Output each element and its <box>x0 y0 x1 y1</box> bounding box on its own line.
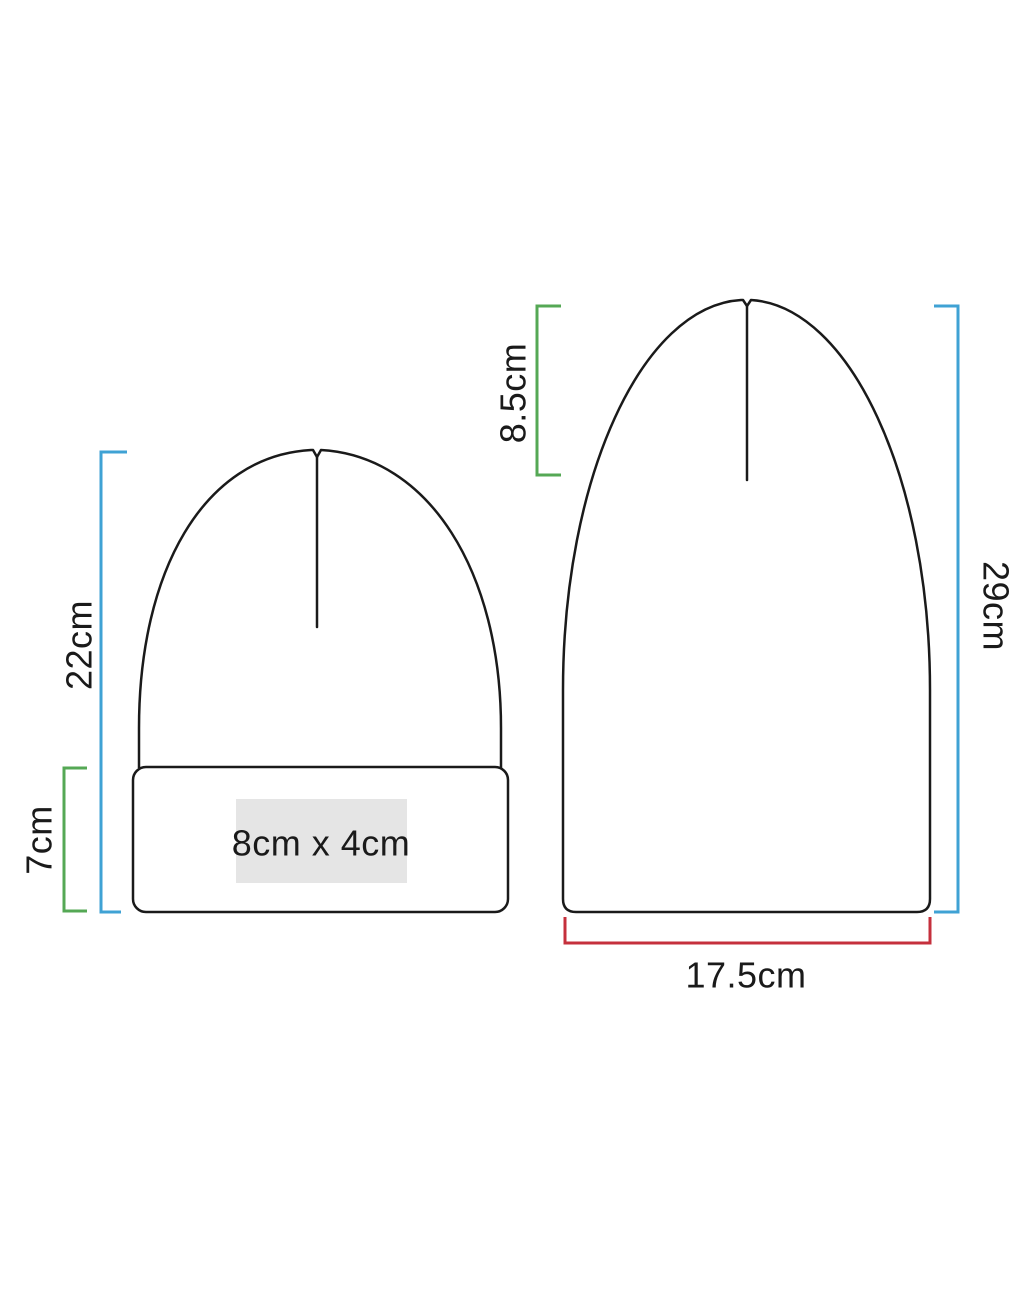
cuffed-height-bracket <box>101 452 127 912</box>
cuffed-height-label: 22cm <box>59 600 100 690</box>
cuffed-beanie-figure: 8cm x 4cm <box>133 450 508 912</box>
uncuffed-height-bracket <box>934 306 958 912</box>
cuff-height-label: 7cm <box>19 805 60 875</box>
crown-height-bracket <box>537 306 561 475</box>
print-area-label: 8cm x 4cm <box>232 823 411 864</box>
cuffed-beanie-crown-outline <box>139 450 501 768</box>
size-diagram-canvas: 8cm x 4cm 22cm 7cm 8.5cm 29cm 17.5cm <box>0 0 1024 1304</box>
cuff-height-bracket <box>64 768 87 911</box>
uncuffed-height-label: 29cm <box>976 561 1017 651</box>
beanie-size-diagram: 8cm x 4cm 22cm 7cm 8.5cm 29cm 17.5cm <box>0 0 1024 1304</box>
width-bracket <box>565 917 930 943</box>
width-label: 17.5cm <box>685 955 806 996</box>
uncuffed-beanie-figure <box>563 300 930 912</box>
crown-height-label: 8.5cm <box>493 343 534 444</box>
